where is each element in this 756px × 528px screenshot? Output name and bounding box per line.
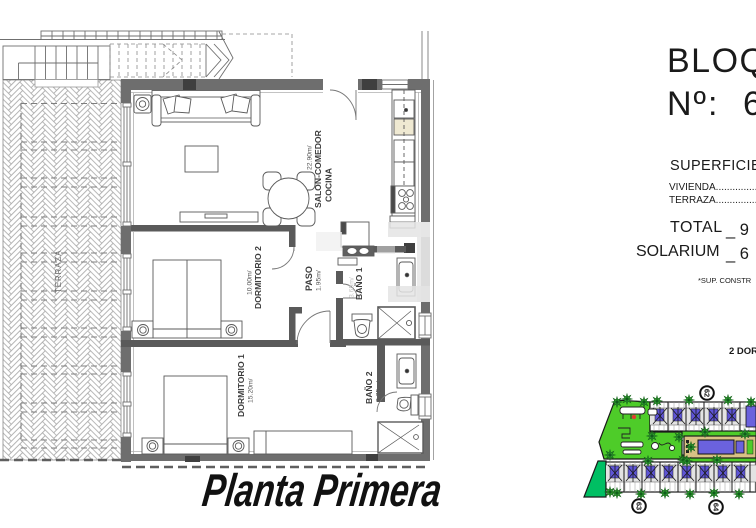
svg-text:SALON-COMEDOR: SALON-COMEDOR [313, 129, 323, 208]
svg-text:VIVIENDA......................: VIVIENDA................................… [669, 182, 756, 193]
svg-text:2 DOR: 2 DOR [729, 346, 756, 357]
svg-text:BAÑO 2: BAÑO 2 [364, 371, 374, 404]
svg-text:SUPERFICIES: SUPERFICIES [670, 158, 756, 174]
svg-text:15.20m/: 15.20m/ [248, 378, 255, 403]
svg-text:64: 64 [711, 503, 720, 512]
svg-text:BAÑO 1: BAÑO 1 [354, 267, 364, 300]
svg-text:_ 6: _ 6 [725, 245, 749, 263]
svg-text:Planta Primera: Planta Primera [200, 464, 445, 516]
svg-text:10.00m/: 10.00m/ [247, 270, 254, 295]
svg-text:3.65m/: 3.65m/ [349, 277, 356, 298]
svg-text:PASO: PASO [304, 266, 314, 291]
svg-text:TERRAZA.......................: TERRAZA.................................… [669, 195, 756, 206]
svg-text:6: 6 [743, 85, 756, 123]
svg-text:3.75m/: 3.75m/ [376, 381, 383, 402]
svg-text:TERRAZA: TERRAZA [54, 250, 63, 293]
svg-text:22.90m/: 22.90m/ [307, 145, 314, 170]
svg-text:Nº:: Nº: [667, 85, 719, 123]
svg-text:1.95m/: 1.95m/ [316, 270, 323, 291]
svg-text:SOLARIUM: SOLARIUM [636, 243, 720, 260]
svg-text:63: 63 [634, 502, 643, 510]
svg-text:*SUP. CONSTR: *SUP. CONSTR [698, 276, 752, 285]
svg-text:TOTAL: TOTAL [670, 219, 723, 236]
svg-text:62: 62 [702, 389, 711, 397]
svg-text:DORMITORIO 1: DORMITORIO 1 [236, 354, 246, 417]
svg-text:DORMITORIO 2: DORMITORIO 2 [253, 246, 263, 309]
svg-text:_ 9: _ 9 [725, 221, 749, 239]
svg-text:COCINA: COCINA [324, 168, 334, 202]
svg-text:BLOQ: BLOQ [667, 42, 756, 80]
